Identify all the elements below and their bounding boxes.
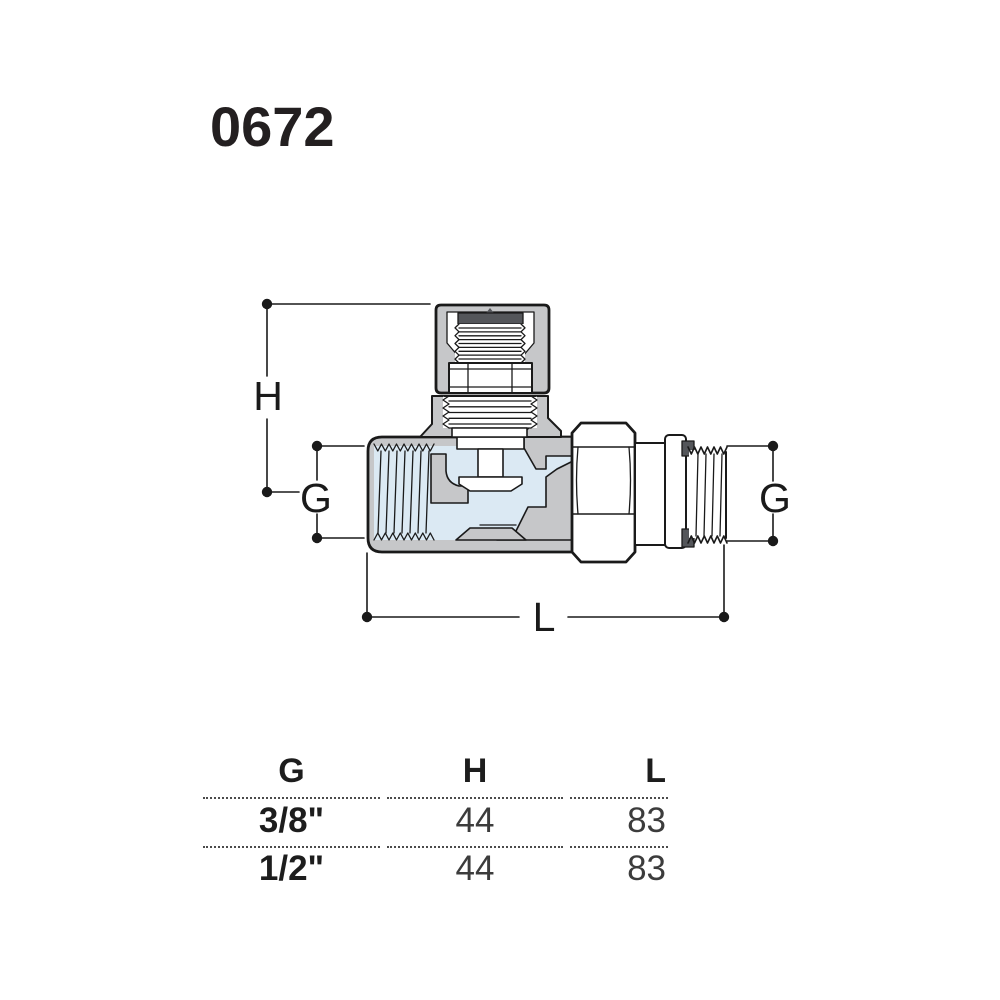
dim-dot <box>768 441 778 451</box>
table-cell-size-1: 3/8" <box>203 799 380 848</box>
table-cell-h-1: 44 <box>387 799 563 848</box>
dimension-table: G H L 3/8" 44 83 1/2" 44 83 <box>203 741 668 893</box>
table-header-l: L <box>570 741 668 799</box>
dim-label-h: H <box>253 373 283 419</box>
male-thread <box>688 447 727 543</box>
union-nut <box>572 423 635 562</box>
dim-dot <box>262 299 272 309</box>
stem-cap <box>458 313 523 324</box>
dim-dot <box>719 612 729 622</box>
table-header-h: H <box>387 741 563 799</box>
valve-body <box>368 437 573 552</box>
dim-dot <box>312 533 322 543</box>
tailpiece <box>635 435 727 548</box>
bonnet-hex <box>449 363 532 393</box>
tail-neck <box>635 443 665 545</box>
dim-dot <box>768 536 778 546</box>
dim-label-g-right: G <box>759 475 791 521</box>
joint-neck <box>452 428 527 437</box>
dim-label-l: L <box>533 594 556 640</box>
table-cell-h-2: 44 <box>387 848 563 893</box>
spool-disc <box>459 477 522 491</box>
valve-bonnet <box>420 305 561 437</box>
table-cell-l-2: 83 <box>570 848 668 893</box>
dim-label-g-left: G <box>300 475 332 521</box>
dim-dot <box>262 487 272 497</box>
stem-thread <box>455 324 525 363</box>
g-dimension-left: G <box>300 441 364 543</box>
dim-dot <box>312 441 322 451</box>
dim-dot <box>362 612 372 622</box>
l-dimension: L <box>362 545 729 640</box>
table-header-g: G <box>203 741 380 799</box>
nut-outline <box>572 423 635 562</box>
table-cell-size-2: 1/2" <box>203 848 380 893</box>
spool-stem <box>478 449 503 477</box>
table-cell-l-1: 83 <box>570 799 668 848</box>
spool-flange <box>457 437 524 449</box>
g-dimension-right: G <box>727 441 791 546</box>
